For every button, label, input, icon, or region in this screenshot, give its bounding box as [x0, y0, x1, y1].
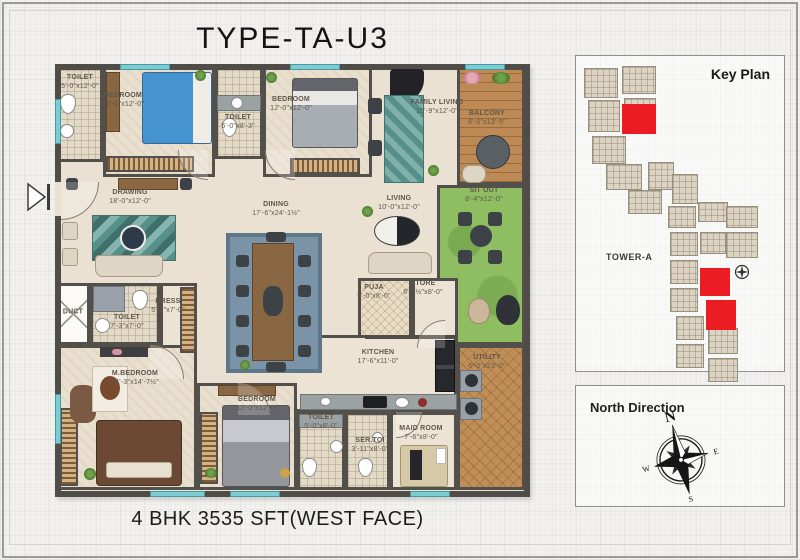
- key-plan-building: [726, 232, 758, 258]
- key-plan-building: [726, 206, 758, 228]
- furniture-chair: [298, 285, 311, 297]
- furniture-sink: [320, 397, 331, 406]
- entrance-arrow-icon: [26, 182, 52, 212]
- furniture-decor: [112, 349, 122, 355]
- furniture-armchair: [368, 140, 382, 156]
- svg-text:W: W: [641, 464, 651, 475]
- room-label-bedroom-top-mid: BEDROOM12'-0"x12'-0": [270, 95, 312, 113]
- key-plan-building: [708, 328, 738, 354]
- room-label-dress: DRESS5'-0"x7'-0": [151, 297, 185, 315]
- furniture-cooktop: [363, 396, 387, 408]
- wall: [524, 70, 530, 491]
- furniture-wardrobe: [290, 158, 360, 174]
- furniture-throw: [410, 450, 422, 480]
- furniture-plant: [428, 165, 439, 176]
- furniture-plant: [240, 360, 250, 370]
- room-label-kitchen: KITCHEN17'-6"x11'-0": [357, 348, 398, 366]
- furniture-sofa: [95, 255, 163, 277]
- room-label-servant-toilet: SER.TOI3'-11"x8'-0": [351, 436, 388, 454]
- key-plan-building: [676, 344, 704, 368]
- key-plan-building: [698, 202, 728, 222]
- furniture-washer-drum: [465, 402, 478, 415]
- key-plan-building: [672, 174, 698, 204]
- room-label-toilet-top-mid: TOILET5'-0"x8'-3": [221, 113, 255, 131]
- room-label-toilet-bottom: TOILET5'-0"x8'-0": [304, 413, 338, 431]
- key-plan-highlight: [700, 268, 730, 296]
- furniture-chair: [236, 315, 249, 327]
- svg-text:N: N: [663, 408, 678, 426]
- key-plan-building: [606, 164, 642, 190]
- furniture-chair: [458, 212, 472, 226]
- plan-summary: 4 BHK 3535 SFT(WEST FACE): [40, 508, 515, 531]
- furniture-chair: [298, 345, 311, 357]
- site-map: [576, 56, 784, 371]
- key-plan-building: [708, 358, 738, 382]
- furniture-bean-bag: [468, 298, 490, 324]
- furniture-chair: [298, 315, 311, 327]
- key-plan-building: [588, 100, 620, 132]
- window-strip: [230, 491, 280, 497]
- furniture-sink: [395, 397, 409, 408]
- room-label-bedroom-bottom: BEDROOM12'-0"x12'-0": [236, 395, 278, 413]
- window-strip: [150, 491, 205, 497]
- furniture-pillow: [436, 448, 446, 464]
- furniture-chair: [266, 232, 286, 242]
- furniture-plant: [84, 468, 96, 480]
- furniture-basin: [330, 440, 343, 453]
- furniture-bowl: [418, 398, 427, 407]
- window-strip: [290, 64, 340, 70]
- furniture-chair: [488, 250, 502, 264]
- furniture-shower: [93, 286, 125, 312]
- furniture-chair: [266, 362, 286, 372]
- furniture-bed-blue: [142, 72, 212, 144]
- floor-plan: TOILET5'-0"x12'-0" BEDROOM12'-0"x12'-0" …: [55, 64, 530, 497]
- room-label-living: LIVING10'-0"x12'-0": [378, 194, 420, 212]
- furniture-flower-pot: [463, 72, 481, 84]
- key-plan-building: [670, 288, 698, 312]
- window-strip: [410, 491, 450, 497]
- room-label-maid-room: MAID ROOM7'-6"x8'-0": [399, 424, 442, 442]
- furniture-basin: [231, 97, 243, 109]
- furniture-chair: [462, 165, 486, 183]
- key-plan-panel: Key Plan TOWER-A: [575, 55, 785, 372]
- room-label-bedroom-top-left: BEDROOM12'-0"x12'-0": [102, 91, 144, 109]
- furniture-chair: [458, 250, 472, 264]
- room-label-toilet-master: TOILET7'-3"x7'-0": [110, 313, 144, 331]
- furniture-chair: [298, 255, 311, 267]
- key-plan-building: [592, 136, 626, 164]
- wall: [55, 491, 530, 497]
- furniture-plant-pot: [180, 178, 192, 190]
- room-label-puja: PUJA5'-0"x8'-0": [357, 283, 391, 301]
- furniture-round-table: [476, 135, 510, 169]
- window-strip: [465, 64, 505, 70]
- furniture-pillows: [106, 462, 172, 478]
- key-plan-building: [700, 232, 726, 254]
- furniture-washer-drum: [465, 374, 478, 387]
- furniture-dresser: [100, 347, 148, 357]
- furniture-coffee-table-oval: [374, 216, 420, 246]
- furniture-bean-bag: [496, 295, 520, 325]
- key-plan-highlight: [622, 104, 656, 134]
- room-label-master-bedroom: M.BEDROOM14'-3"x14'-7½": [111, 369, 159, 387]
- room-label-utility: UTILITY6'-0"x23'-0": [468, 353, 506, 371]
- furniture-table: [470, 225, 492, 247]
- key-plan-building: [676, 316, 704, 340]
- furniture-plant: [492, 72, 510, 84]
- mini-compass-icon: [734, 264, 750, 280]
- furniture-centerpiece: [263, 286, 283, 316]
- room-label-toilet-top-left: TOILET5'-0"x12'-0": [61, 73, 99, 91]
- furniture-chair: [236, 345, 249, 357]
- furniture-chair: [236, 285, 249, 297]
- room-label-drawing: DRAWING18'-0"x12'-0": [109, 188, 151, 206]
- key-plan-building: [622, 66, 656, 94]
- furniture-sofa: [368, 252, 432, 274]
- furniture-plant: [362, 206, 373, 217]
- key-plan-building: [670, 260, 698, 284]
- room-label-sit-out: SIT OUT8'-4"x12'-0": [465, 186, 503, 204]
- window-strip: [55, 99, 61, 144]
- key-plan-building: [628, 190, 662, 214]
- furniture-armchair: [62, 222, 78, 240]
- room-label-family-living: FAMILY LIVING10'-9"x12'-0": [411, 98, 464, 116]
- furniture-basin: [60, 124, 74, 138]
- key-plan-building: [670, 232, 698, 256]
- window-strip: [120, 64, 170, 70]
- furniture-armchair: [62, 248, 78, 266]
- room-label-balcony: BALCONY6'-0"x13'-5": [468, 109, 506, 127]
- furniture-chair: [236, 255, 249, 267]
- floor-plan-sheet: { "title": "TYPE-TA-U3", "footer": "4 BH…: [0, 0, 800, 560]
- key-plan-building: [584, 68, 618, 98]
- furniture-plant: [205, 468, 217, 478]
- key-plan-building: [668, 206, 696, 228]
- furniture-coffee-table: [120, 225, 146, 251]
- svg-text:E: E: [713, 447, 720, 457]
- furniture-chair: [488, 212, 502, 226]
- furniture-lamp: [280, 468, 290, 478]
- room-label-duct: DUCT: [63, 307, 83, 316]
- window-strip: [55, 394, 61, 444]
- north-direction-panel: North Direction N E S W: [575, 385, 785, 507]
- furniture-plant: [266, 72, 277, 83]
- key-plan-highlight: [706, 300, 736, 330]
- furniture-plant: [195, 70, 206, 81]
- key-plan-building: [648, 162, 674, 190]
- room-label-store: STORE6'-5½"x8'-0": [403, 279, 443, 297]
- svg-text:S: S: [688, 494, 694, 504]
- furniture-basin: [95, 318, 110, 333]
- room-label-dining: DINING17'-6"x24'-1½": [252, 200, 300, 218]
- furniture-armchair: [368, 98, 382, 114]
- page-title: TYPE-TA-U3: [55, 22, 530, 56]
- compass-rose-icon: N E S W: [624, 398, 736, 513]
